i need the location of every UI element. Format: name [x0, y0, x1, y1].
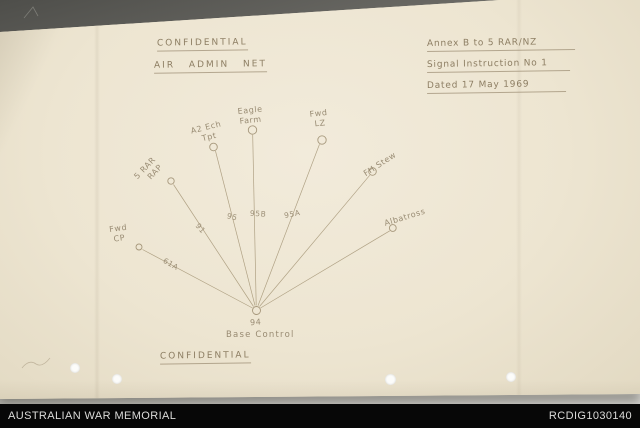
annex-line-1: Annex B to 5 RAR/NZ — [427, 37, 575, 52]
scanned-page: CONFIDENTIAL AIR ADMIN NET Annex B to 5 … — [0, 0, 640, 404]
punch-hole-2 — [112, 374, 122, 384]
record-id-label: RCDIG1030140 — [549, 410, 632, 422]
page-title: AIR ADMIN NET — [154, 59, 267, 74]
corner-pencil-mark — [24, 7, 38, 18]
classification-top: CONFIDENTIAL — [157, 37, 248, 51]
punch-hole-3 — [385, 374, 396, 385]
institution-label: AUSTRALIAN WAR MEMORIAL — [8, 410, 176, 422]
scanned-document-viewer: CONFIDENTIAL AIR ADMIN NET Annex B to 5 … — [0, 0, 640, 428]
footer-bar: AUSTRALIAN WAR MEMORIAL RCDIG1030140 — [0, 404, 640, 428]
punch-hole-4 — [506, 372, 516, 382]
classification-bottom: CONFIDENTIAL — [160, 350, 251, 364]
annex-line-2: Signal Instruction No 1 — [427, 58, 570, 73]
punch-hole-1 — [70, 363, 80, 373]
annex-line-3: Dated 17 May 1969 — [427, 79, 566, 94]
